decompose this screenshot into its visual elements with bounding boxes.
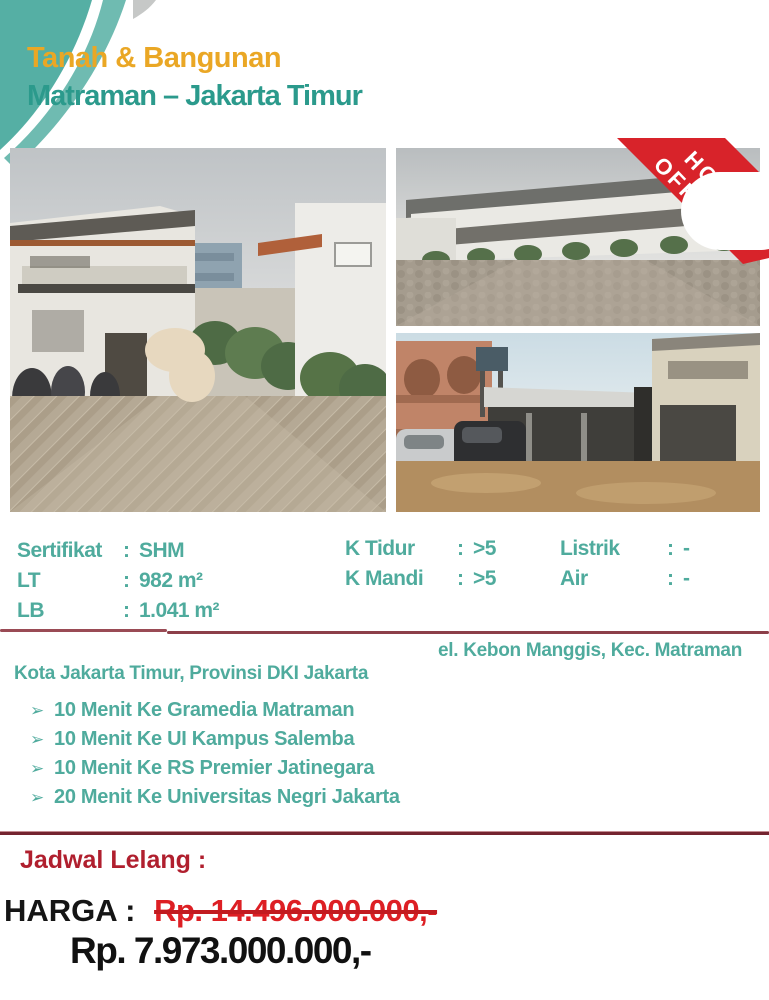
detail-colon: : <box>457 537 473 561</box>
detail-label: K Mandi <box>345 567 457 591</box>
price-line: HARGA : Rp. 14.496.000.000,- <box>4 893 437 929</box>
detail-value: >5 <box>473 537 496 561</box>
page-title: Tanah & Bangunan <box>27 42 281 75</box>
landmark-text: 10 Menit Ke RS Premier Jatinegara <box>54 757 374 780</box>
detail-label: Sertifikat <box>17 539 123 563</box>
landmark-text: 10 Menit Ke Gramedia Matraman <box>54 699 354 722</box>
detail-row: Sertifikat : SHM <box>17 536 219 566</box>
detail-value: - <box>683 567 690 591</box>
listing-flyer: Tanah & Bangunan Matraman – Jakarta Timu… <box>0 0 769 1000</box>
detail-label: LT <box>17 569 123 593</box>
separator-line-left <box>0 629 167 632</box>
location-line-kelurahan: el. Kebon Manggis, Kec. Matraman <box>438 640 742 662</box>
detail-colon: : <box>667 567 683 591</box>
new-price: Rp. 7.973.000.000,- <box>70 930 371 972</box>
property-photo-courtyard <box>10 148 386 512</box>
detail-value: >5 <box>473 567 496 591</box>
separator-line-right <box>167 631 769 634</box>
page-subtitle: Matraman – Jakarta Timur <box>27 80 362 113</box>
details-column-utilities: Listrik : - Air : - <box>560 534 690 594</box>
detail-colon: : <box>667 537 683 561</box>
landmark-text: 10 Menit Ke UI Kampus Salemba <box>54 728 354 751</box>
landmark-item: ➢ 10 Menit Ke Gramedia Matraman <box>30 696 400 725</box>
separator-line-bottom <box>0 831 769 835</box>
detail-label: Air <box>560 567 667 591</box>
property-photo-carport <box>396 333 760 512</box>
detail-row: K Tidur : >5 <box>345 534 496 564</box>
detail-value: SHM <box>139 539 184 563</box>
detail-row: K Mandi : >5 <box>345 564 496 594</box>
detail-value: 982 m² <box>139 569 203 593</box>
landmark-text: 20 Menit Ke Universitas Negri Jakarta <box>54 786 400 809</box>
detail-row: LB : 1.041 m² <box>17 596 219 626</box>
detail-colon: : <box>123 569 139 593</box>
price-label: HARGA : <box>4 893 135 928</box>
arrow-bullet-icon: ➢ <box>30 788 54 808</box>
detail-row: Listrik : - <box>560 534 690 564</box>
detail-colon: : <box>123 599 139 623</box>
detail-row: LT : 982 m² <box>17 566 219 596</box>
landmark-item: ➢ 10 Menit Ke UI Kampus Salemba <box>30 725 400 754</box>
detail-label: K Tidur <box>345 537 457 561</box>
old-price-strikethrough: Rp. 14.496.000.000,- <box>154 893 437 928</box>
details-column-rooms: K Tidur : >5 K Mandi : >5 <box>345 534 496 594</box>
detail-row: Air : - <box>560 564 690 594</box>
landmark-item: ➢ 20 Menit Ke Universitas Negri Jakarta <box>30 783 400 812</box>
detail-label: Listrik <box>560 537 667 561</box>
detail-colon: : <box>457 567 473 591</box>
detail-value: - <box>683 537 690 561</box>
arrow-bullet-icon: ➢ <box>30 759 54 779</box>
detail-colon: : <box>123 539 139 563</box>
landmarks-list: ➢ 10 Menit Ke Gramedia Matraman ➢ 10 Men… <box>30 696 400 812</box>
arrow-bullet-icon: ➢ <box>30 701 54 721</box>
details-column-certificate: Sertifikat : SHM LT : 982 m² LB : 1.041 … <box>17 536 219 626</box>
location-line-kota: Kota Jakarta Timur, Provinsi DKI Jakarta <box>14 663 368 685</box>
auction-schedule-heading: Jadwal Lelang : <box>20 846 206 875</box>
landmark-item: ➢ 10 Menit Ke RS Premier Jatinegara <box>30 754 400 783</box>
detail-value: 1.041 m² <box>139 599 219 623</box>
watermark-cover-blob <box>681 172 769 250</box>
detail-label: LB <box>17 599 123 623</box>
arrow-bullet-icon: ➢ <box>30 730 54 750</box>
